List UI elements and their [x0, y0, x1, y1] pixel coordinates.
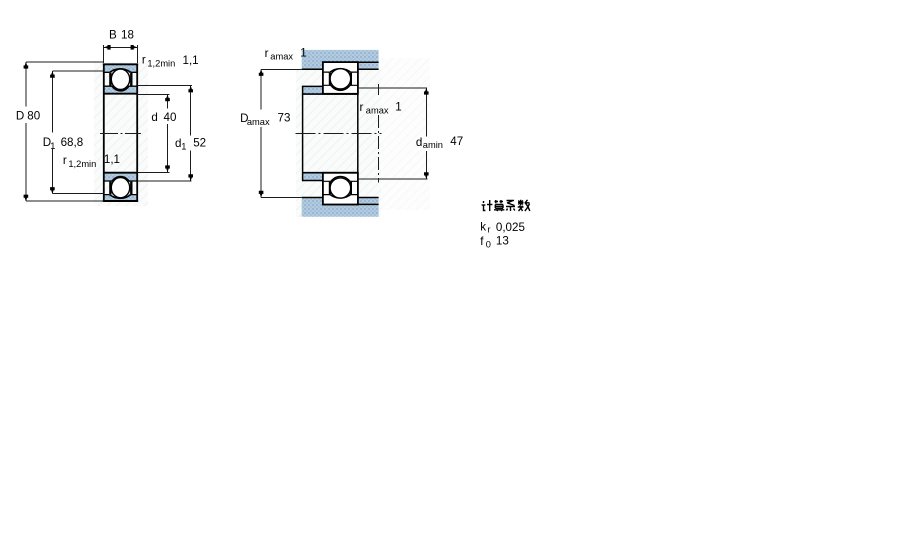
svg-text:amax: amax [247, 117, 270, 127]
svg-text:1: 1 [50, 141, 55, 151]
svg-text:r: r [63, 154, 67, 167]
svg-text:1: 1 [395, 101, 401, 114]
svg-text:68,8: 68,8 [61, 136, 84, 149]
svg-text:1,2min: 1,2min [147, 59, 175, 69]
svg-text:k: k [480, 221, 486, 234]
svg-text:r: r [142, 54, 146, 67]
svg-text:D: D [16, 110, 24, 123]
svg-text:amax: amax [270, 51, 293, 61]
svg-text:B: B [109, 29, 117, 42]
svg-text:d: d [151, 111, 157, 124]
svg-text:r: r [265, 47, 269, 60]
svg-text:1,2min: 1,2min [68, 159, 96, 169]
svg-text:amin: amin [423, 140, 443, 150]
svg-text:0,025: 0,025 [496, 221, 525, 234]
svg-text:r: r [487, 225, 490, 235]
svg-text:r: r [360, 101, 364, 114]
svg-text:1: 1 [181, 142, 186, 152]
svg-text:1: 1 [300, 47, 306, 60]
svg-text:d: d [416, 136, 422, 149]
svg-text:18: 18 [121, 29, 134, 42]
svg-text:1,1: 1,1 [104, 153, 120, 166]
svg-text:80: 80 [27, 110, 40, 123]
svg-text:73: 73 [278, 112, 291, 125]
svg-text:47: 47 [450, 135, 463, 148]
svg-text:13: 13 [496, 235, 509, 248]
svg-text:0: 0 [486, 240, 491, 250]
svg-text:1,1: 1,1 [183, 54, 199, 67]
svg-text:amax: amax [366, 106, 389, 116]
svg-text:40: 40 [164, 111, 177, 124]
svg-text:52: 52 [193, 137, 206, 150]
